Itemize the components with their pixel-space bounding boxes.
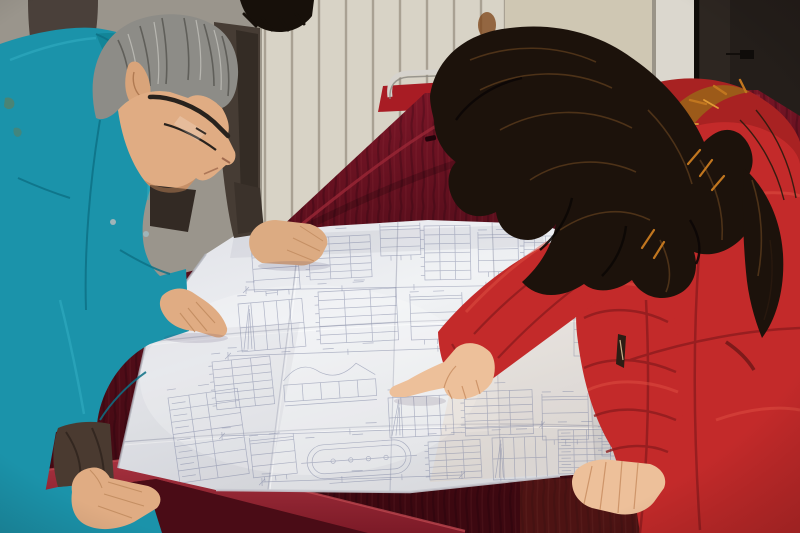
door-latch	[740, 50, 754, 59]
jacket-snap	[143, 231, 149, 237]
photo-scene	[0, 0, 800, 533]
bg-person-hand	[249, 220, 327, 266]
jacket-snap	[110, 219, 116, 225]
